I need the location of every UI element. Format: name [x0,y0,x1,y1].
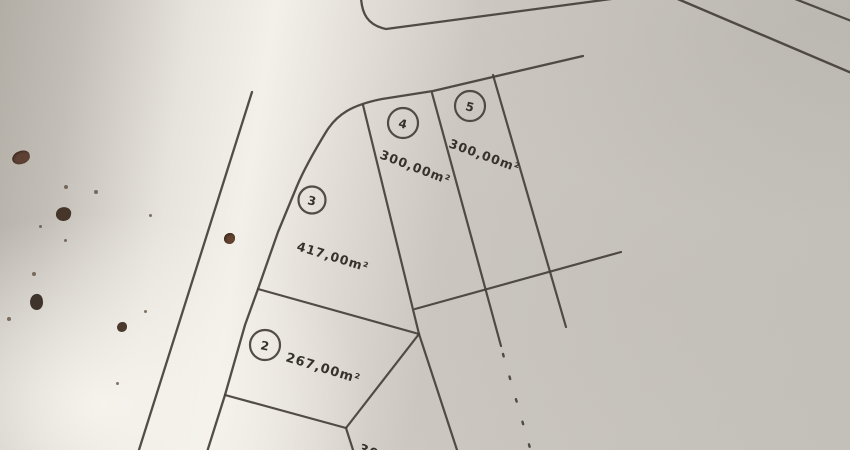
road-edge-topright-inner-line [790,0,850,22]
parcel-5-right-boundary-line [493,75,566,327]
parcel-5-area-label: 300,00m² [447,136,522,176]
dotted-boundary-line [503,354,532,450]
parcel-2-area-label: 267,00m² [284,350,362,387]
parcel-2-number: 2 [259,338,270,353]
parcel-4-number: 4 [397,116,408,132]
parcel-divider-2-bottom-line [225,395,346,428]
parcel-3-area-label: 417,00m² [295,239,371,275]
parcel-divider-4-5-line [432,93,501,346]
parcel-3-number: 3 [306,193,317,208]
survey-drawing: 3 4 5 2 417,00m² 300,00m² 300,00m² 267,0… [0,0,850,450]
parcel-4-5-bottom-boundary-line [415,252,621,309]
parcel-divider-3-2-line [258,289,419,334]
parcel-block-boundary-line [207,56,583,450]
junction-southeast-line [419,334,458,450]
parcel-divider-3-4-line [363,105,419,334]
parcel-5-number: 5 [464,99,475,115]
road-edge-top-line [361,0,626,29]
road-edge-left-line [138,92,252,450]
bottom-parcel-area-label: 308,00m² [357,442,435,450]
bottom-parcel-divider-line [346,428,354,450]
parcel-4-area-label: 300,00m² [378,147,453,188]
photo-of-cadastral-sketch: 3 4 5 2 417,00m² 300,00m² 300,00m² 267,0… [0,0,850,450]
